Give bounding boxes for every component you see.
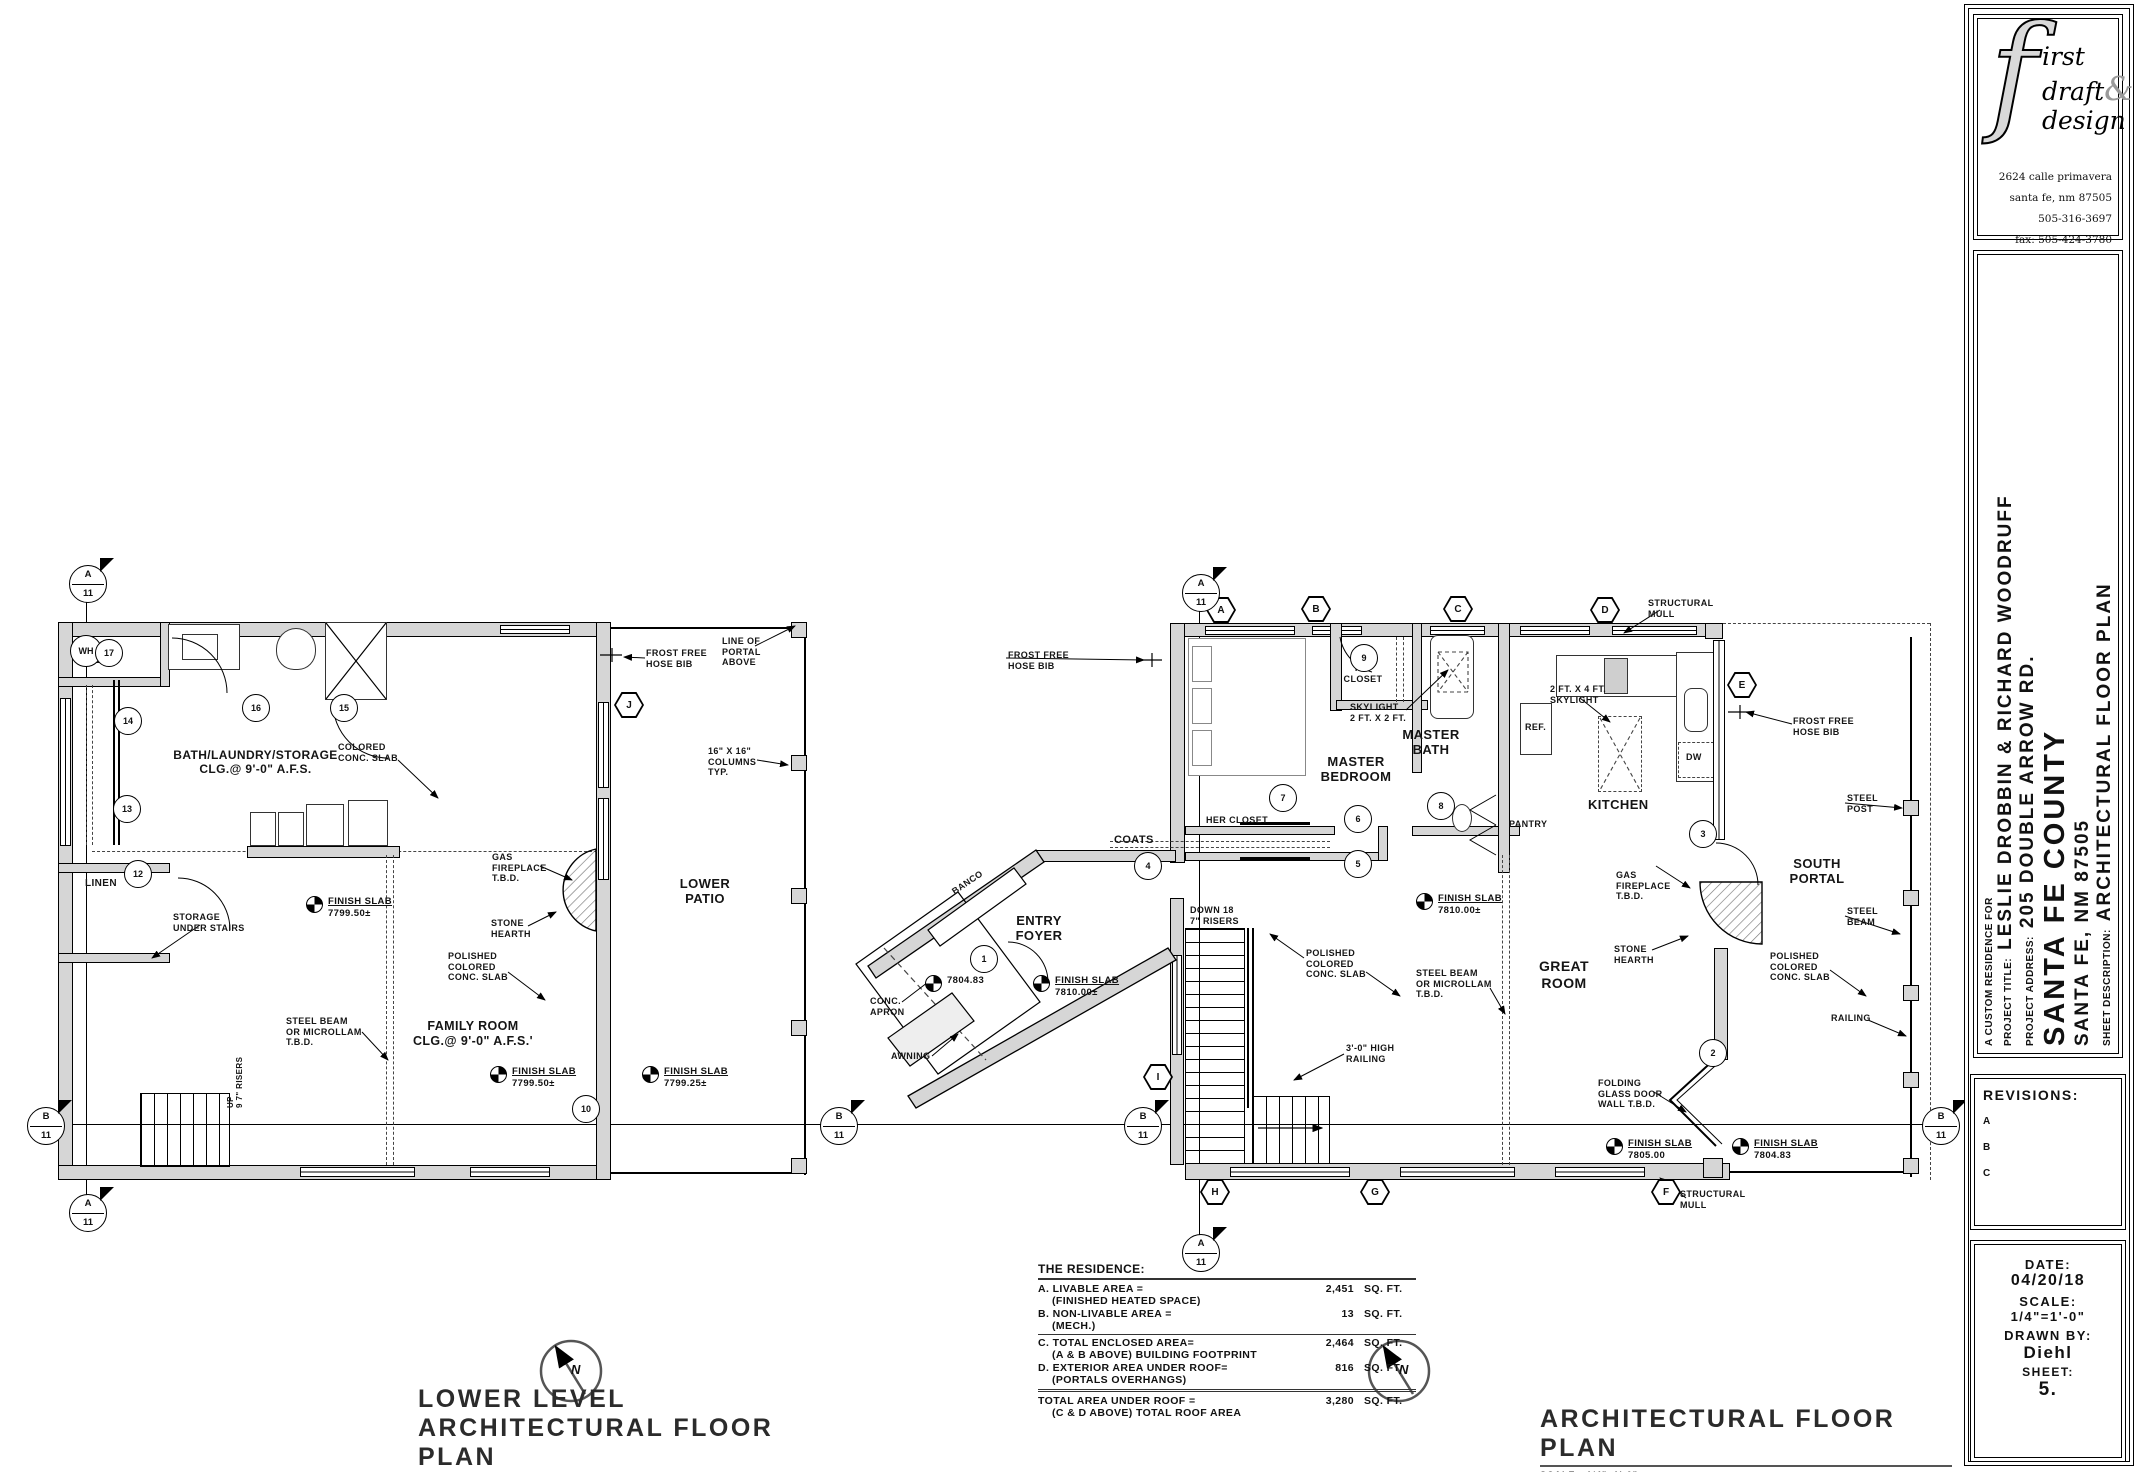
room-label-south-portal: SOUTH PORTAL bbox=[1780, 856, 1854, 887]
project-info-rotated: A CUSTOM RESIDENCE FOR PROJECT TITLE: LE… bbox=[1984, 266, 2112, 1046]
key-circle: 16 bbox=[242, 694, 270, 722]
residence-area-table: THE RESIDENCE: A. LIVABLE AREA =(FINISHE… bbox=[1038, 1262, 1416, 1420]
project-address-label: PROJECT ADDRESS: bbox=[2025, 936, 2036, 1046]
sheet-description-label: SHEET DESCRIPTION: bbox=[2102, 929, 2113, 1046]
plan-annotation: COLORED CONC. SLAB bbox=[338, 742, 398, 763]
benchmark-icon bbox=[490, 1066, 507, 1083]
plan-annotation: STRUCTURAL MULL bbox=[1680, 1189, 1746, 1210]
finish-slab-benchmark: FINISH SLAB7799.25± bbox=[642, 1066, 728, 1090]
custom-residence-line: A CUSTOM RESIDENCE FOR bbox=[1984, 897, 1995, 1046]
drawing-sheet: N N MECH.BATH/LAUNDRY/STORAGE CLG.@ 9'-0… bbox=[0, 0, 2137, 1472]
plan-annotation: RAILING bbox=[1831, 1013, 1871, 1024]
lower-plan-title-line1: LOWER LEVEL bbox=[418, 1385, 830, 1414]
firm-address-line: santa fe, nm 87505 bbox=[1984, 188, 2112, 209]
revisions-box: REVISIONS: ABC bbox=[1970, 1074, 2126, 1230]
plan-annotation: STORAGE UNDER STAIRS bbox=[173, 912, 245, 933]
section-marker: B11 bbox=[1124, 1107, 1162, 1145]
plan-annotation: LINE OF PORTAL ABOVE bbox=[722, 636, 761, 668]
room-label-kitchen: KITCHEN bbox=[1588, 797, 1649, 812]
key-circle: 5 bbox=[1344, 850, 1372, 878]
finish-slab-benchmark: FINISH SLAB7804.83 bbox=[1732, 1138, 1818, 1162]
firm-address-line: 505-316-3697 bbox=[1984, 209, 2112, 230]
project-address-2: SANTA FE COUNTY bbox=[2039, 729, 2072, 1046]
section-marker: B11 bbox=[820, 1107, 858, 1145]
sheet-info-box: DATE: 04/20/18 SCALE: 1/4"=1'-0" DRAWN B… bbox=[1970, 1240, 2126, 1462]
plan-annotation: STEEL BEAM bbox=[1847, 906, 1878, 927]
section-marker: A11 bbox=[69, 565, 107, 603]
firm-address-line: 2624 calle primavera bbox=[1984, 167, 2112, 188]
drawn-by-value: Diehl bbox=[1983, 1343, 2113, 1363]
plan-annotation: STRUCTURAL MULL bbox=[1648, 598, 1714, 619]
firm-box: f irst draft& design 2624 calle primaver… bbox=[1973, 14, 2123, 240]
key-circle: 10 bbox=[572, 1095, 600, 1123]
key-circle: 8 bbox=[1427, 792, 1455, 820]
plan-annotation: STONE HEARTH bbox=[491, 918, 531, 939]
plan-annotation: STEEL BEAM OR MICROLLAM T.B.D. bbox=[1416, 968, 1492, 1000]
key-circle: 4 bbox=[1134, 852, 1162, 880]
key-circle: 6 bbox=[1344, 805, 1372, 833]
firm-logo: f irst draft& design bbox=[1984, 25, 2112, 153]
section-marker: A11 bbox=[69, 1194, 107, 1232]
plan-annotation: 16" X 16" COLUMNS TYP. bbox=[708, 746, 756, 778]
plan-annotation: STEEL POST bbox=[1847, 793, 1878, 814]
plan-annotation: REF. bbox=[1525, 722, 1546, 733]
finish-slab-benchmark: FINISH SLAB7799.50± bbox=[306, 896, 392, 920]
room-label-pantry: PANTRY bbox=[1509, 819, 1547, 830]
room-label-linen: LINEN bbox=[85, 878, 117, 890]
plan-annotation: 3'-0" HIGH RAILING bbox=[1346, 1043, 1394, 1064]
plan-annotation: POLISHED COLORED CONC. SLAB bbox=[1770, 951, 1830, 983]
lower-plan-title-line2: ARCHITECTURAL FLOOR PLAN bbox=[418, 1414, 830, 1472]
section-marker: B11 bbox=[1922, 1107, 1960, 1145]
sheet-number-label: SHEET: bbox=[1983, 1365, 2113, 1379]
key-circle: 13 bbox=[113, 795, 141, 823]
room-label-bath-laundry-storage: BATH/LAUNDRY/STORAGE CLG.@ 9'-0" A.F.S. bbox=[158, 748, 353, 776]
drawn-by-label: DRAWN BY: bbox=[1983, 1328, 2113, 1343]
area-table-row: C. TOTAL ENCLOSED AREA=(A & B ABOVE) BUI… bbox=[1038, 1337, 1416, 1361]
area-table-row: B. NON-LIVABLE AREA =(MECH.)13SQ. FT. bbox=[1038, 1308, 1416, 1332]
benchmark-icon bbox=[1033, 975, 1050, 992]
area-table-row: TOTAL AREA UNDER ROOF =(C & D ABOVE) TOT… bbox=[1038, 1395, 1416, 1419]
revision-item: A bbox=[1983, 1109, 2113, 1135]
benchmark-icon bbox=[1606, 1138, 1623, 1155]
lower-plan-title: LOWER LEVEL ARCHITECTURAL FLOOR PLAN SCA… bbox=[418, 1385, 830, 1472]
section-marker: A11 bbox=[1182, 574, 1220, 612]
scale-label: SCALE: bbox=[1983, 1294, 2113, 1309]
area-table-row: A. LIVABLE AREA =(FINISHED HEATED SPACE)… bbox=[1038, 1283, 1416, 1307]
plan-annotation: FROST FREE HOSE BIB bbox=[1008, 650, 1069, 671]
revisions-label: REVISIONS: bbox=[1983, 1087, 2113, 1103]
main-plan-title: ARCHITECTURAL FLOOR PLAN SCALE: 1/4"=1'-… bbox=[1540, 1405, 1952, 1472]
plan-annotation: DW bbox=[1686, 752, 1702, 763]
room-label-entry-foyer: ENTRY FOYER bbox=[1002, 913, 1076, 944]
plan-annotation: STEEL BEAM OR MICROLLAM T.B.D. bbox=[286, 1016, 362, 1048]
section-marker: B11 bbox=[27, 1107, 65, 1145]
area-table-row: D. EXTERIOR AREA UNDER ROOF=(PORTALS OVE… bbox=[1038, 1362, 1416, 1386]
room-label-coats: COATS bbox=[1114, 834, 1154, 847]
finish-slab-benchmark: 7804.83 bbox=[925, 975, 984, 992]
room-label-master-bedroom: MASTER BEDROOM bbox=[1306, 754, 1406, 785]
benchmark-icon bbox=[306, 896, 323, 913]
key-circle: 1 bbox=[970, 945, 998, 973]
finish-slab-benchmark: FINISH SLAB7805.00 bbox=[1606, 1138, 1692, 1162]
key-circle: 14 bbox=[114, 707, 142, 735]
sheet-description: ARCHITECTURAL FLOOR PLAN bbox=[2094, 582, 2116, 921]
plan-annotation: FROST FREE HOSE BIB bbox=[1793, 716, 1854, 737]
firm-address-line: fax: 505-424-3780 bbox=[1984, 230, 2112, 251]
plan-annotation: SKYLIGHT 2 FT. X 2 FT. bbox=[1350, 702, 1406, 723]
key-circle: 2 bbox=[1699, 1039, 1727, 1067]
revisions-list: ABC bbox=[1983, 1109, 2113, 1187]
plan-annotation: 2 FT. X 4 FT. SKYLIGHT bbox=[1550, 684, 1606, 705]
plan-annotation: DOWN 18 7" RISERS bbox=[1190, 905, 1239, 926]
room-label-family-room: FAMILY ROOM CLG.@ 9'-0" A.F.S.' bbox=[398, 1019, 548, 1049]
plan-annotation: POLISHED COLORED CONC. SLAB bbox=[1306, 948, 1366, 980]
benchmark-icon bbox=[642, 1066, 659, 1083]
key-circle: 7 bbox=[1269, 784, 1297, 812]
project-title: LESLIE DROBBIN & RICHARD WOODRUFF bbox=[1995, 494, 2017, 949]
project-title-label: PROJECT TITLE: bbox=[2003, 958, 2014, 1046]
date-value: 04/20/18 bbox=[1983, 1272, 2113, 1290]
finish-slab-benchmark: FINISH SLAB7810.00± bbox=[1416, 893, 1502, 917]
date-label: DATE: bbox=[1983, 1257, 2113, 1272]
plan-annotation: AWNING bbox=[891, 1051, 930, 1062]
revision-item: B bbox=[1983, 1135, 2113, 1161]
north-label: N bbox=[571, 1362, 580, 1377]
scale-value: 1/4"=1'-0" bbox=[1983, 1309, 2113, 1324]
finish-slab-benchmark: FINISH SLAB7799.50± bbox=[490, 1066, 576, 1090]
benchmark-icon bbox=[1732, 1138, 1749, 1155]
plan-annotation: UP 9 7" RISERS bbox=[226, 1057, 245, 1108]
key-circle: 9 bbox=[1350, 644, 1378, 672]
room-label-great-room: GREAT ROOM bbox=[1522, 958, 1606, 991]
benchmark-icon bbox=[1416, 893, 1433, 910]
finish-slab-benchmark: FINISH SLAB7810.00± bbox=[1033, 975, 1119, 999]
key-circle: 17 bbox=[95, 639, 123, 667]
plan-annotation: FROST FREE HOSE BIB bbox=[646, 648, 707, 669]
project-address-1: 205 DOUBLE ARROW RD. bbox=[2017, 654, 2039, 928]
area-table-title: THE RESIDENCE: bbox=[1038, 1262, 1416, 1280]
main-plan-title-line: ARCHITECTURAL FLOOR PLAN bbox=[1540, 1405, 1952, 1467]
key-circle: 15 bbox=[330, 694, 358, 722]
key-circle: 12 bbox=[124, 860, 152, 888]
benchmark-icon bbox=[925, 975, 942, 992]
room-label-her-closet: HER CLOSET bbox=[1206, 815, 1268, 826]
project-address-3: SANTA FE, NM 87505 bbox=[2072, 819, 2094, 1046]
plan-annotation: STONE HEARTH bbox=[1614, 944, 1654, 965]
plan-annotation: POLISHED COLORED CONC. SLAB bbox=[448, 951, 508, 983]
logo-f: f bbox=[1990, 0, 2037, 148]
plan-annotation: FOLDING GLASS DOOR WALL T.B.D. bbox=[1598, 1078, 1663, 1110]
revision-item: C bbox=[1983, 1161, 2113, 1187]
plan-annotation: GAS FIREPLACE T.B.D. bbox=[492, 852, 547, 884]
sheet-number: 5. bbox=[1983, 1379, 2113, 1401]
room-label-lower-patio: LOWER PATIO bbox=[663, 876, 747, 907]
plan-annotation: GAS FIREPLACE T.B.D. bbox=[1616, 870, 1671, 902]
key-circle: 3 bbox=[1689, 820, 1717, 848]
plan-annotation: CONC. APRON bbox=[870, 996, 905, 1017]
